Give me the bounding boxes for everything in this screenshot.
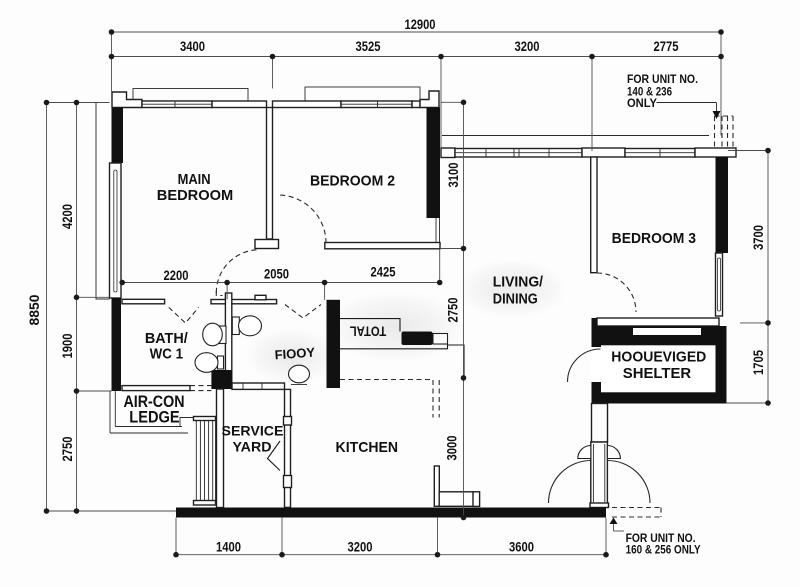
svg-text:1400: 1400: [216, 540, 241, 555]
svg-text:160 & 256 ONLY: 160 & 256 ONLY: [626, 545, 701, 557]
svg-text:3600: 3600: [509, 540, 534, 555]
svg-text:WC 1: WC 1: [150, 346, 183, 363]
svg-text:BEDROOM 2: BEDROOM 2: [310, 172, 395, 189]
svg-text:ONLY: ONLY: [627, 98, 657, 110]
svg-text:2750: 2750: [60, 437, 75, 462]
svg-text:2425: 2425: [371, 265, 396, 280]
svg-text:1900: 1900: [60, 334, 75, 359]
svg-text:FOR UNIT NO.: FOR UNIT NO.: [626, 533, 696, 545]
svg-text:DINING: DINING: [493, 291, 538, 308]
svg-text:TOTAL: TOTAL: [349, 323, 386, 339]
svg-text:BEDROOM: BEDROOM: [157, 187, 234, 204]
svg-text:SERVICE: SERVICE: [222, 424, 284, 439]
svg-text:3000: 3000: [445, 436, 460, 461]
svg-text:3100: 3100: [446, 163, 461, 188]
svg-text:LEDGE: LEDGE: [129, 409, 179, 427]
svg-text:3700: 3700: [751, 225, 766, 250]
svg-text:3400: 3400: [180, 39, 205, 54]
svg-text:140 & 236: 140 & 236: [627, 87, 672, 99]
svg-text:3200: 3200: [515, 39, 540, 54]
svg-text:12900: 12900: [405, 17, 436, 32]
svg-text:2775: 2775: [654, 39, 679, 54]
svg-text:FIOOY: FIOOY: [274, 345, 316, 363]
svg-text:BATH/: BATH/: [145, 330, 189, 347]
svg-text:2050: 2050: [264, 267, 289, 282]
svg-text:LIVING/: LIVING/: [493, 274, 544, 291]
svg-text:4200: 4200: [60, 204, 75, 229]
svg-text:KITCHEN: KITCHEN: [336, 439, 399, 456]
svg-text:HOOUEVIGED: HOOUEVIGED: [611, 348, 706, 365]
svg-text:8850: 8850: [27, 295, 42, 326]
svg-text:BEDROOM 3: BEDROOM 3: [612, 230, 696, 247]
svg-text:2200: 2200: [164, 268, 189, 283]
svg-text:3200: 3200: [348, 540, 373, 555]
svg-text:YARD: YARD: [233, 439, 272, 455]
svg-text:3525: 3525: [356, 39, 381, 54]
svg-text:2750: 2750: [446, 298, 461, 323]
svg-text:1705: 1705: [751, 350, 766, 375]
svg-text:FOR UNIT NO.: FOR UNIT NO.: [627, 74, 698, 86]
svg-text:SHELTER: SHELTER: [623, 365, 692, 382]
svg-text:MAIN: MAIN: [178, 171, 211, 188]
